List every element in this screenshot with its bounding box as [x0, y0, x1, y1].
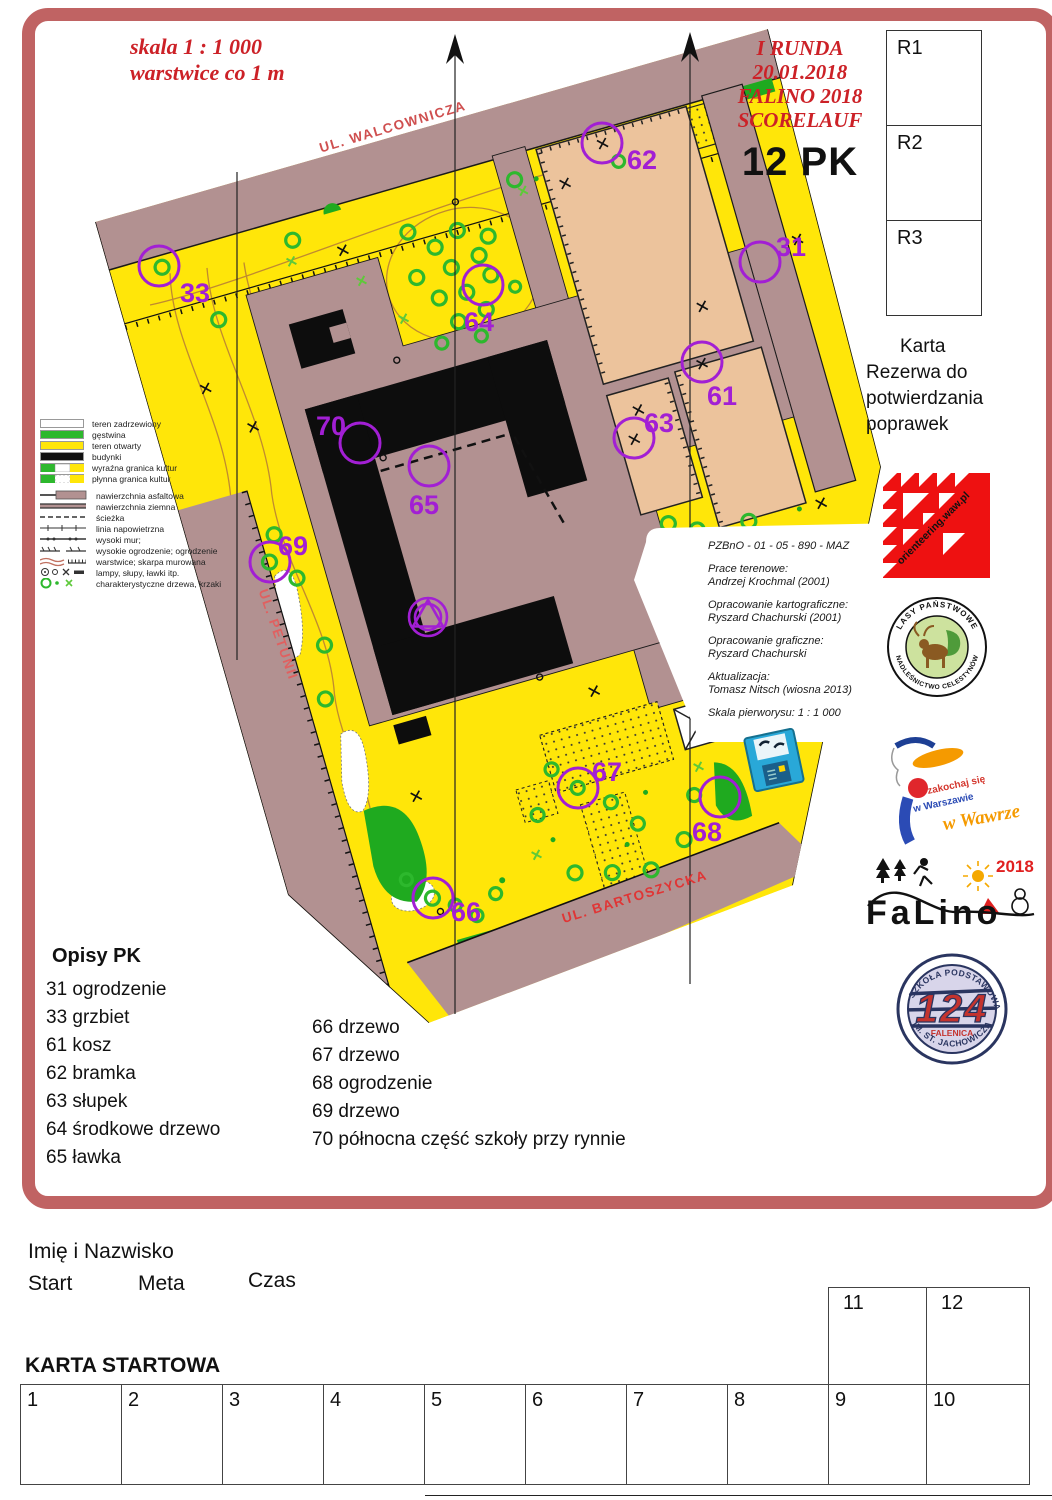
- event-line1: I RUNDA: [700, 36, 900, 60]
- description-item: 70 północna część szkoły przy rynnie: [312, 1126, 626, 1154]
- event-line3: FALINO 2018: [700, 84, 900, 108]
- legend-swatch-icon: [40, 474, 84, 483]
- legend-label: gęstwina: [92, 430, 126, 440]
- legend-symbol-icon: [40, 512, 92, 523]
- legend-symbol-row: linia napowietrzna: [40, 523, 275, 534]
- legend-label: linia napowietrzna: [96, 524, 164, 534]
- event-line4: SCORELAUF: [700, 108, 900, 132]
- name-label: Imię i Nazwisko: [28, 1240, 174, 1264]
- legend-label: charakterystyczne drzewa, krzaki: [96, 579, 221, 589]
- map-legend: teren zadrzewionygęstwinateren otwartybu…: [40, 418, 275, 589]
- legend-area-row: płynna granica kultur: [40, 473, 275, 484]
- legend-area-row: budynki: [40, 451, 275, 462]
- legend-symbol-icon: [40, 556, 92, 567]
- credits-line: Skala pierworysu: 1 : 1 000: [708, 707, 918, 721]
- description-item: 69 drzewo: [312, 1098, 626, 1126]
- legend-symbol-row: ścieżka: [40, 512, 275, 523]
- reserve-box-r3: R3: [886, 220, 982, 316]
- description-item: 68 ogrodzenie: [312, 1070, 626, 1098]
- start-label: Start: [28, 1272, 72, 1296]
- legend-symbol-row: lampy, słupy, ławki itp.: [40, 567, 275, 578]
- start-card-cell-2: 2: [121, 1384, 223, 1485]
- start-card-cell-12: 12: [926, 1287, 1030, 1385]
- legend-area-row: gęstwina: [40, 429, 275, 440]
- description-item: 33 grzbiet: [46, 1004, 220, 1032]
- legend-swatch-icon: [40, 463, 84, 472]
- legend-area-row: wyraźna granica kultur: [40, 462, 275, 473]
- start-card-title: KARTA STARTOWA: [25, 1354, 220, 1378]
- warsaw-logo-line1: zakochaj się: [926, 774, 986, 797]
- legend-label: wysokie ogrodzenie; ogrodzenie: [96, 546, 217, 556]
- points-count: 12 PK: [700, 140, 900, 185]
- legend-symbol-icon: [40, 501, 92, 512]
- legend-symbol-icon: [40, 545, 92, 556]
- start-card-cell-11: 11: [828, 1287, 927, 1385]
- legend-label: nawierzchnia ziemna: [96, 502, 175, 512]
- start-card-cell-8: 8: [727, 1384, 829, 1485]
- falino-logo-text: FaLino: [866, 894, 1001, 932]
- start-card-cell-1: 1: [20, 1384, 122, 1485]
- legend-label: płynna granica kultur: [92, 474, 170, 484]
- start-card-cell-4: 4: [323, 1384, 425, 1485]
- descriptions-title: Opisy PK: [52, 942, 220, 970]
- legend-symbol-row: nawierzchnia ziemna: [40, 501, 275, 512]
- legend-symbol-row: wysoki mur;: [40, 534, 275, 545]
- legend-label: warstwice; skarpa murowana: [96, 557, 206, 567]
- description-item: 65 ławka: [46, 1144, 220, 1172]
- reserve-caption-line: poprawek: [866, 412, 1016, 438]
- description-item: 31 ogrodzenie: [46, 976, 220, 1004]
- warsaw-wawer-logo: zakochaj się w Warszawie w Wawrze: [878, 732, 1028, 847]
- legend-swatch-icon: [40, 452, 84, 461]
- czas-label: Czas: [248, 1269, 296, 1293]
- description-item: 66 drzewo: [312, 1014, 626, 1042]
- control-descriptions: Opisy PK 31 ogrodzenie33 grzbiet61 kosz6…: [46, 942, 220, 1172]
- legend-symbol-icon: [40, 523, 92, 534]
- legend-label: teren zadrzewiony: [92, 419, 161, 429]
- legend-area-row: teren zadrzewiony: [40, 418, 275, 429]
- orienteering-waw-logo: orienteering.waw.pl: [883, 473, 993, 581]
- bottom-rule: [425, 1495, 1052, 1496]
- legend-swatch-icon: [40, 430, 84, 439]
- event-header: I RUNDA 20.01.2018 FALINO 2018 SCORELAUF: [700, 36, 900, 132]
- descriptions-col1: 31 ogrodzenie33 grzbiet61 kosz62 bramka6…: [46, 976, 220, 1172]
- legend-swatch-icon: [40, 419, 84, 428]
- reserve-box-r1: R1: [886, 30, 982, 126]
- reserve-box-r2: R2: [886, 125, 982, 221]
- legend-symbol-icon: [40, 534, 92, 545]
- start-card-cell-5: 5: [424, 1384, 526, 1485]
- meta-label: Meta: [138, 1272, 185, 1296]
- legend-swatch-icon: [40, 441, 84, 450]
- description-item: 63 słupek: [46, 1088, 220, 1116]
- legend-symbol-row: nawierzchnia asfaltowa: [40, 490, 275, 501]
- legend-label: lampy, słupy, ławki itp.: [96, 568, 179, 578]
- scale-line2: warstwice co 1 m: [130, 60, 285, 86]
- reserve-caption: Karta Rezerwa do potwierdzania poprawek: [866, 334, 1016, 438]
- legend-label: ścieżka: [96, 513, 124, 523]
- start-card-cell-7: 7: [626, 1384, 728, 1485]
- reserve-caption-line: potwierdzania: [866, 386, 1016, 412]
- legend-area-row: teren otwarty: [40, 440, 275, 451]
- start-card-cell-9: 9: [828, 1384, 927, 1485]
- start-card-cell-6: 6: [525, 1384, 627, 1485]
- description-item: 64 środkowe drzewo: [46, 1116, 220, 1144]
- falino-year: 2018: [996, 857, 1034, 876]
- scale-line1: skala 1 : 1 000: [130, 34, 285, 60]
- falino-logo: 2018 FaLino: [858, 850, 1043, 940]
- description-item: 61 kosz: [46, 1032, 220, 1060]
- start-card-cell-10: 10: [926, 1384, 1030, 1485]
- legend-label: budynki: [92, 452, 121, 462]
- legend-symbol-icon: [40, 490, 92, 501]
- legend-symbol-icon: [40, 567, 92, 578]
- school-number: 124: [916, 987, 989, 1031]
- map-sheet: UL. WALCOWNICZAUL. PETUNIIUL. BARTOSZYCK…: [0, 0, 1052, 1500]
- legend-symbol-row: wysokie ogrodzenie; ogrodzenie: [40, 545, 275, 556]
- event-line2: 20.01.2018: [700, 60, 900, 84]
- legend-symbol-row: charakterystyczne drzewa, krzaki: [40, 578, 275, 589]
- reserve-caption-line: Karta: [866, 334, 1016, 360]
- school-badge-logo: 124 FALENICA SZKOŁA PODSTAWOWA IM. ST. J…: [895, 952, 1010, 1067]
- forest-district-logo: LASY PAŃSTWOWE NADLEŚNICTWO CELESTYNÓW: [886, 596, 988, 698]
- descriptions-col2: 66 drzewo67 drzewo68 ogrodzenie69 drzewo…: [312, 1014, 626, 1154]
- scale-note: skala 1 : 1 000 warstwice co 1 m: [130, 34, 285, 86]
- description-item: 62 bramka: [46, 1060, 220, 1088]
- reserve-caption-line: Rezerwa do: [866, 360, 1016, 386]
- start-card-cell-3: 3: [222, 1384, 324, 1485]
- legend-symbol-icon: [40, 578, 92, 589]
- legend-symbol-row: warstwice; skarpa murowana: [40, 556, 275, 567]
- description-item: 67 drzewo: [312, 1042, 626, 1070]
- legend-label: nawierzchnia asfaltowa: [96, 491, 184, 501]
- legend-label: wysoki mur;: [96, 535, 141, 545]
- legend-label: wyraźna granica kultur: [92, 463, 177, 473]
- legend-label: teren otwarty: [92, 441, 141, 451]
